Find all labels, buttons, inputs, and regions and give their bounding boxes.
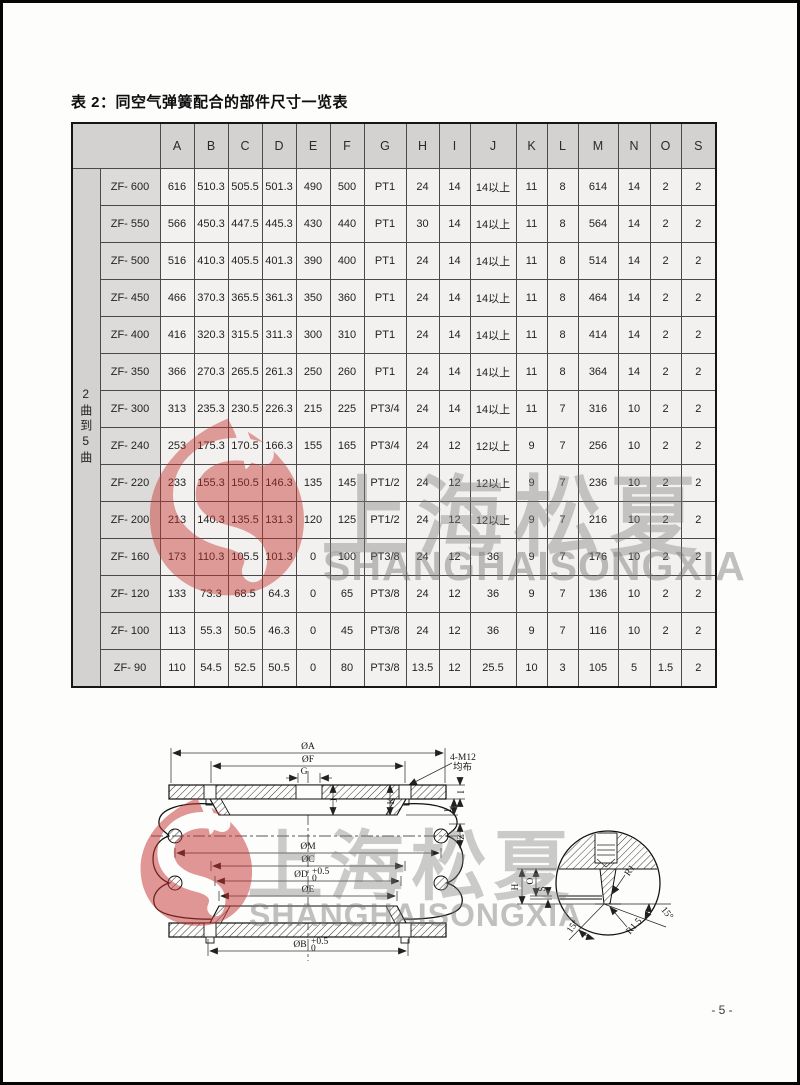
value-cell: 2 [681, 428, 716, 465]
value-cell: 8 [547, 206, 578, 243]
value-cell: 145 [330, 465, 364, 502]
value-cell: 466 [160, 280, 194, 317]
value-cell: 131.3 [262, 502, 296, 539]
value-cell: 464 [578, 280, 618, 317]
column-header: H [406, 123, 439, 169]
value-cell: 410.3 [194, 243, 228, 280]
value-cell: 14 [439, 280, 470, 317]
dim-label-od-subscript: 0 [312, 874, 317, 884]
value-cell: 25.5 [470, 650, 516, 688]
value-cell: 450.3 [194, 206, 228, 243]
column-header: C [228, 123, 262, 169]
value-cell: 64.3 [262, 576, 296, 613]
value-cell: 12 [439, 576, 470, 613]
value-cell: 10 [516, 650, 547, 688]
value-cell: 10 [618, 539, 650, 576]
value-cell: 10 [618, 576, 650, 613]
value-cell: 12 [439, 650, 470, 688]
value-cell: PT1 [364, 317, 406, 354]
value-cell: 400 [330, 243, 364, 280]
model-cell: ZF- 550 [100, 206, 160, 243]
catalog-page: 表 2：同空气弹簧配合的部件尺寸一览表 ABCDEFGHIJKLMNOS 2曲到… [0, 0, 800, 1085]
value-cell: 14以上 [470, 317, 516, 354]
value-cell: 14 [439, 391, 470, 428]
value-cell: 514 [578, 243, 618, 280]
value-cell: 12 [439, 539, 470, 576]
value-cell: 24 [406, 539, 439, 576]
table-row: ZF- 10011355.350.546.3045PT3/82412369711… [72, 613, 716, 650]
value-cell: 73.3 [194, 576, 228, 613]
value-cell: 14以上 [470, 206, 516, 243]
value-cell: 173 [160, 539, 194, 576]
value-cell: 300 [296, 317, 330, 354]
dim-label-j: J [330, 798, 340, 802]
value-cell: 80 [330, 650, 364, 688]
value-cell: 2 [650, 243, 681, 280]
value-cell: 2 [650, 428, 681, 465]
value-cell: 54.5 [194, 650, 228, 688]
value-cell: 125 [330, 502, 364, 539]
value-cell: 7 [547, 613, 578, 650]
value-cell: 14 [618, 317, 650, 354]
value-cell: 8 [547, 280, 578, 317]
model-cell: ZF- 500 [100, 243, 160, 280]
value-cell: 0 [296, 650, 330, 688]
dim-label-o: O [526, 877, 536, 884]
value-cell: 12以上 [470, 428, 516, 465]
value-cell: 2 [650, 391, 681, 428]
value-cell: 24 [406, 391, 439, 428]
value-cell: 9 [516, 465, 547, 502]
table-row: ZF- 200213140.3135.5131.3120125PT1/22412… [72, 502, 716, 539]
value-cell: 12以上 [470, 502, 516, 539]
model-cell: ZF- 220 [100, 465, 160, 502]
value-cell: 105 [578, 650, 618, 688]
value-cell: 253 [160, 428, 194, 465]
value-cell: 24 [406, 243, 439, 280]
value-cell: 10 [618, 391, 650, 428]
value-cell: 2 [681, 539, 716, 576]
value-cell: 256 [578, 428, 618, 465]
value-cell: PT1 [364, 243, 406, 280]
value-cell: 370.3 [194, 280, 228, 317]
value-cell: 313 [160, 391, 194, 428]
value-cell: 11 [516, 206, 547, 243]
value-cell: 430 [296, 206, 330, 243]
dim-label-h: H [511, 883, 521, 890]
value-cell: PT1 [364, 169, 406, 206]
value-cell: 390 [296, 243, 330, 280]
value-cell: 405.5 [228, 243, 262, 280]
value-cell: 2 [681, 502, 716, 539]
value-cell: 14 [439, 354, 470, 391]
value-cell: 11 [516, 317, 547, 354]
model-cell: ZF- 120 [100, 576, 160, 613]
value-cell: 12 [439, 428, 470, 465]
value-cell: 516 [160, 243, 194, 280]
model-cell: ZF- 600 [100, 169, 160, 206]
value-cell: 170.5 [228, 428, 262, 465]
value-cell: 36 [470, 539, 516, 576]
dim-label-om: ØM [300, 842, 316, 852]
value-cell: 7 [547, 539, 578, 576]
value-cell: 361.3 [262, 280, 296, 317]
value-cell: 24 [406, 613, 439, 650]
value-cell: 2 [681, 243, 716, 280]
dim-label-ob: ØB [293, 940, 306, 950]
dim-label-of: ØF [302, 755, 314, 765]
value-cell: 416 [160, 317, 194, 354]
value-cell: 2 [681, 576, 716, 613]
value-cell: PT3/8 [364, 539, 406, 576]
value-cell: 24 [406, 576, 439, 613]
value-cell: 614 [578, 169, 618, 206]
value-cell: 10 [618, 465, 650, 502]
column-header: E [296, 123, 330, 169]
value-cell: 133 [160, 576, 194, 613]
value-cell: 11 [516, 243, 547, 280]
column-header: S [681, 123, 716, 169]
column-header: G [364, 123, 406, 169]
dim-label-l: L [444, 806, 454, 812]
value-cell: 116 [578, 613, 618, 650]
value-cell: 14以上 [470, 354, 516, 391]
value-cell: 366 [160, 354, 194, 391]
value-cell: 36 [470, 576, 516, 613]
value-cell: 11 [516, 354, 547, 391]
value-cell: 505.5 [228, 169, 262, 206]
value-cell: 14 [618, 243, 650, 280]
value-cell: 8 [547, 169, 578, 206]
value-cell: 9 [516, 502, 547, 539]
value-cell: 213 [160, 502, 194, 539]
value-cell: 310 [330, 317, 364, 354]
value-cell: 270.3 [194, 354, 228, 391]
value-cell: 46.3 [262, 613, 296, 650]
corner-cell [72, 123, 160, 169]
value-cell: 564 [578, 206, 618, 243]
dim-label-s: S [538, 886, 548, 891]
value-cell: 36 [470, 613, 516, 650]
value-cell: 8 [547, 317, 578, 354]
value-cell: 445.3 [262, 206, 296, 243]
value-cell: 120 [296, 502, 330, 539]
value-cell: 2 [650, 206, 681, 243]
value-cell: 2 [650, 280, 681, 317]
page-title: 表 2：同空气弹簧配合的部件尺寸一览表 [71, 91, 348, 112]
value-cell: PT1/2 [364, 465, 406, 502]
value-cell: 2 [650, 354, 681, 391]
value-cell: 14 [439, 243, 470, 280]
value-cell: 100 [330, 539, 364, 576]
value-cell: 155.3 [194, 465, 228, 502]
value-cell: 13.5 [406, 650, 439, 688]
value-cell: 10 [618, 428, 650, 465]
value-cell: 500 [330, 169, 364, 206]
value-cell: 2 [681, 169, 716, 206]
value-cell: 12 [439, 613, 470, 650]
value-cell: 9 [516, 576, 547, 613]
row-group-label: 2曲到5曲 [72, 169, 100, 688]
value-cell: 311.3 [262, 317, 296, 354]
value-cell: 2 [650, 169, 681, 206]
model-cell: ZF- 450 [100, 280, 160, 317]
value-cell: 8 [547, 243, 578, 280]
value-cell: 14 [618, 354, 650, 391]
value-cell: 176 [578, 539, 618, 576]
table-row: ZF- 160173110.3105.5101.30100PT3/8241236… [72, 539, 716, 576]
value-cell: 2 [650, 613, 681, 650]
value-cell: 235.3 [194, 391, 228, 428]
value-cell: 14以上 [470, 280, 516, 317]
value-cell: 14 [439, 317, 470, 354]
dim-label-ob-subscript: 0 [311, 944, 316, 954]
value-cell: 3 [547, 650, 578, 688]
value-cell: 2 [681, 280, 716, 317]
value-cell: 155 [296, 428, 330, 465]
table-row: ZF- 550566450.3447.5445.3430440PT1301414… [72, 206, 716, 243]
value-cell: 2 [650, 502, 681, 539]
column-header: F [330, 123, 364, 169]
column-header: I [439, 123, 470, 169]
value-cell: PT1 [364, 280, 406, 317]
value-cell: 7 [547, 576, 578, 613]
table-row: ZF- 450466370.3365.5361.3350360PT1241414… [72, 280, 716, 317]
value-cell: 165 [330, 428, 364, 465]
value-cell: 12 [439, 465, 470, 502]
value-cell: 2 [650, 465, 681, 502]
value-cell: 2 [681, 317, 716, 354]
table-row: 2曲到5曲ZF- 600616510.3505.5501.3490500PT12… [72, 169, 716, 206]
value-cell: 265.5 [228, 354, 262, 391]
value-cell: 12 [439, 502, 470, 539]
value-cell: 7 [547, 465, 578, 502]
value-cell: 414 [578, 317, 618, 354]
column-header: D [262, 123, 296, 169]
value-cell: 14 [618, 206, 650, 243]
value-cell: 225 [330, 391, 364, 428]
bolt-callout-line1: 4-M12 [450, 753, 476, 763]
value-cell: PT1 [364, 354, 406, 391]
value-cell: 135.5 [228, 502, 262, 539]
value-cell: 616 [160, 169, 194, 206]
model-cell: ZF- 240 [100, 428, 160, 465]
value-cell: 230.5 [228, 391, 262, 428]
value-cell: PT3/4 [364, 428, 406, 465]
value-cell: 360 [330, 280, 364, 317]
value-cell: 14以上 [470, 391, 516, 428]
value-cell: 260 [330, 354, 364, 391]
value-cell: 9 [516, 539, 547, 576]
dim-label-r15: R1.5 [625, 916, 645, 936]
value-cell: 2 [681, 391, 716, 428]
value-cell: 24 [406, 280, 439, 317]
column-header: A [160, 123, 194, 169]
column-header: M [578, 123, 618, 169]
value-cell: 2 [650, 539, 681, 576]
dim-label-oe: ØE [302, 885, 315, 895]
value-cell: 55.3 [194, 613, 228, 650]
value-cell: 350 [296, 280, 330, 317]
value-cell: 11 [516, 280, 547, 317]
value-cell: 2 [681, 613, 716, 650]
value-cell: PT3/4 [364, 391, 406, 428]
dim-label-oa: ØA [301, 742, 315, 752]
column-header: B [194, 123, 228, 169]
table-row: ZF- 12013373.368.564.3065PT3/82412369713… [72, 576, 716, 613]
value-cell: 45 [330, 613, 364, 650]
value-cell: 233 [160, 465, 194, 502]
model-cell: ZF- 300 [100, 391, 160, 428]
column-header: K [516, 123, 547, 169]
value-cell: 510.3 [194, 169, 228, 206]
table-row: ZF- 500516410.3405.5401.3390400PT1241414… [72, 243, 716, 280]
table-row: ZF- 300313235.3230.5226.3215225PT3/42414… [72, 391, 716, 428]
value-cell: 11 [516, 169, 547, 206]
value-cell: 10 [618, 613, 650, 650]
model-cell: ZF- 160 [100, 539, 160, 576]
value-cell: 2 [650, 576, 681, 613]
value-cell: 9 [516, 613, 547, 650]
value-cell: 101.3 [262, 539, 296, 576]
value-cell: 8 [547, 354, 578, 391]
value-cell: 140.3 [194, 502, 228, 539]
model-cell: ZF- 350 [100, 354, 160, 391]
table-row: ZF- 350366270.3265.5261.3250260PT1241414… [72, 354, 716, 391]
value-cell: PT3/8 [364, 576, 406, 613]
value-cell: 2 [681, 650, 716, 688]
value-cell: 216 [578, 502, 618, 539]
value-cell: 24 [406, 428, 439, 465]
value-cell: 7 [547, 502, 578, 539]
value-cell: 7 [547, 391, 578, 428]
value-cell: 0 [296, 613, 330, 650]
value-cell: 215 [296, 391, 330, 428]
model-cell: ZF- 100 [100, 613, 160, 650]
value-cell: 566 [160, 206, 194, 243]
table-body: 2曲到5曲ZF- 600616510.3505.5501.3490500PT12… [72, 169, 716, 688]
table-row: ZF- 9011054.552.550.5080PT3/813.51225.51… [72, 650, 716, 688]
column-header: N [618, 123, 650, 169]
value-cell: 0 [296, 539, 330, 576]
column-header: L [547, 123, 578, 169]
value-cell: 166.3 [262, 428, 296, 465]
column-header: O [650, 123, 681, 169]
value-cell: 68.5 [228, 576, 262, 613]
value-cell: PT3/8 [364, 650, 406, 688]
flange-detail-diagram: H O S R1 15° 15° R1.5 [508, 813, 690, 953]
column-header: J [470, 123, 516, 169]
value-cell: 440 [330, 206, 364, 243]
value-cell: 50.5 [228, 613, 262, 650]
value-cell: 24 [406, 502, 439, 539]
value-cell: 50.5 [262, 650, 296, 688]
value-cell: 447.5 [228, 206, 262, 243]
value-cell: 30 [406, 206, 439, 243]
value-cell: 315.5 [228, 317, 262, 354]
value-cell: 14 [618, 169, 650, 206]
value-cell: PT1 [364, 206, 406, 243]
value-cell: 14以上 [470, 169, 516, 206]
dim-label-oc: ØC [301, 855, 314, 865]
page-number: - 5 - [698, 1003, 746, 1017]
value-cell: PT1/2 [364, 502, 406, 539]
table-head-row: ABCDEFGHIJKLMNOS [72, 123, 716, 169]
value-cell: 401.3 [262, 243, 296, 280]
value-cell: 14 [439, 206, 470, 243]
value-cell: 2 [681, 465, 716, 502]
value-cell: 11 [516, 391, 547, 428]
value-cell: 2 [650, 317, 681, 354]
table-row: ZF- 240253175.3170.5166.3155165PT3/42412… [72, 428, 716, 465]
value-cell: 236 [578, 465, 618, 502]
value-cell: 250 [296, 354, 330, 391]
value-cell: 14 [439, 169, 470, 206]
parts-dimension-table: ABCDEFGHIJKLMNOS 2曲到5曲ZF- 600616510.3505… [71, 122, 717, 688]
value-cell: 490 [296, 169, 330, 206]
value-cell: 52.5 [228, 650, 262, 688]
value-cell: 226.3 [262, 391, 296, 428]
value-cell: 1.5 [650, 650, 681, 688]
value-cell: 136 [578, 576, 618, 613]
value-cell: 10 [618, 502, 650, 539]
bolt-callout-line2: 均布 [453, 761, 472, 773]
value-cell: 14以上 [470, 243, 516, 280]
value-cell: 146.3 [262, 465, 296, 502]
value-cell: 24 [406, 169, 439, 206]
model-cell: ZF- 90 [100, 650, 160, 688]
value-cell: 24 [406, 317, 439, 354]
value-cell: 24 [406, 465, 439, 502]
dim-label-i: I [457, 790, 467, 793]
air-spring-cross-section-diagram: ØA ØF G 4-M12 均布 [148, 739, 480, 989]
value-cell: 12以上 [470, 465, 516, 502]
value-cell: 2 [681, 354, 716, 391]
value-cell: 150.5 [228, 465, 262, 502]
value-cell: 24 [406, 354, 439, 391]
value-cell: 316 [578, 391, 618, 428]
value-cell: 113 [160, 613, 194, 650]
dim-label-z: Z [457, 834, 467, 840]
value-cell: 65 [330, 576, 364, 613]
dim-label-k: K [387, 797, 397, 804]
value-cell: 110 [160, 650, 194, 688]
value-cell: 0 [296, 576, 330, 613]
value-cell: 2 [681, 206, 716, 243]
value-cell: 135 [296, 465, 330, 502]
value-cell: 175.3 [194, 428, 228, 465]
value-cell: 501.3 [262, 169, 296, 206]
model-cell: ZF- 200 [100, 502, 160, 539]
dim-label-angle-left: 15° [565, 918, 582, 935]
value-cell: 5 [618, 650, 650, 688]
value-cell: 365.5 [228, 280, 262, 317]
value-cell: 110.3 [194, 539, 228, 576]
dim-label-angle-right: 15° [658, 905, 675, 922]
value-cell: 14 [618, 280, 650, 317]
value-cell: 261.3 [262, 354, 296, 391]
dim-label-g: G [301, 767, 308, 777]
value-cell: 364 [578, 354, 618, 391]
value-cell: 9 [516, 428, 547, 465]
value-cell: 7 [547, 428, 578, 465]
value-cell: 320.3 [194, 317, 228, 354]
dim-label-od: ØD [294, 870, 308, 880]
value-cell: 105.5 [228, 539, 262, 576]
value-cell: PT3/8 [364, 613, 406, 650]
table-row: ZF- 400416320.3315.5311.3300310PT1241414… [72, 317, 716, 354]
model-cell: ZF- 400 [100, 317, 160, 354]
